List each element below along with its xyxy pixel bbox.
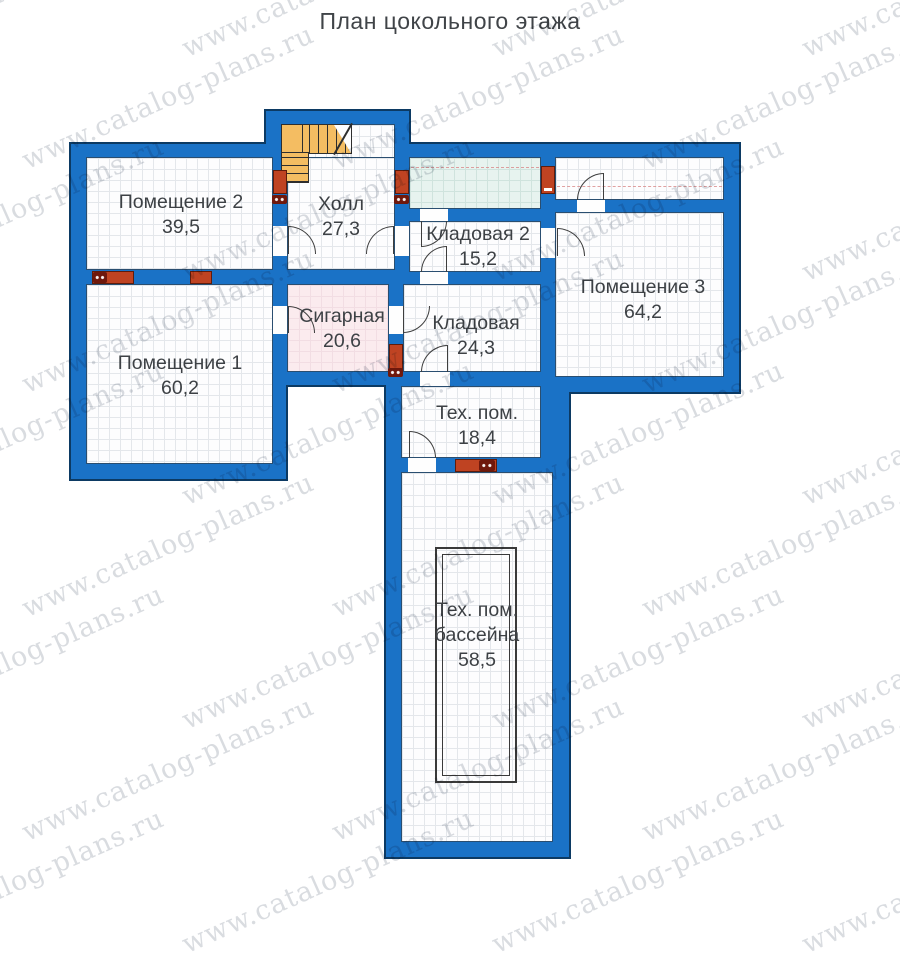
room-label-storage: Кладовая24,3 [432,311,519,361]
room-label-tech: Тех. пом.18,4 [436,401,518,451]
door-opening [389,306,403,334]
room-label-room-1: Помещение 160,2 [118,351,243,401]
door-opening [541,228,555,258]
vent-icon [272,195,287,204]
staircase-landing [282,125,303,153]
room-area: 64,2 [581,300,706,325]
vent-dash [544,188,552,191]
door-opening [273,306,287,334]
vent-icon [93,272,107,283]
room-area: 39,5 [119,215,244,240]
room-area: 27,3 [318,217,364,242]
room-name: Тех. пом. [436,401,518,426]
room-name: Помещение 3 [581,275,706,300]
floor-vestibule [409,157,541,209]
door-opening [420,372,450,386]
room-label-room-3: Помещение 364,2 [581,275,706,325]
beam-dashed-line [411,167,539,168]
room-area: 60,2 [118,376,243,401]
vent [190,271,212,284]
door-opening [273,226,287,256]
room-name: Холл [318,192,364,217]
vent [273,170,287,194]
vent-icon [388,368,403,377]
room-name: Сигарная [299,304,385,329]
door-opening [420,272,448,284]
room-area: 24,3 [432,336,519,361]
vent-icon [394,195,409,204]
room-area: 15,2 [426,247,530,272]
room-name: Кладовая [432,311,519,336]
room-name: бассейна [435,623,519,648]
room-label-pool-tech: Тех. пом.бассейна58,5 [435,598,519,673]
room-name: Помещение 1 [118,351,243,376]
vent-icon [479,460,495,471]
vent [395,170,409,194]
room-name: Тех. пом. [435,598,519,623]
door-opening [577,200,605,212]
door-opening [408,458,436,472]
room-area: 18,4 [436,426,518,451]
room-area: 20,6 [299,329,385,354]
room-label-room-2: Помещение 239,5 [119,190,244,240]
room-area: 58,5 [435,648,519,673]
room-name: Помещение 2 [119,190,244,215]
room-name: Кладовая 2 [426,222,530,247]
floor-plan-canvas: Помещение 239,5Холл27,3Кладовая 215,2Пом… [0,0,900,900]
door-opening [420,209,448,221]
room-label-hall: Холл27,3 [318,192,364,242]
room-label-cigar: Сигарная20,6 [299,304,385,354]
room-label-storage-2: Кладовая 215,2 [426,222,530,272]
door-opening [395,226,409,256]
